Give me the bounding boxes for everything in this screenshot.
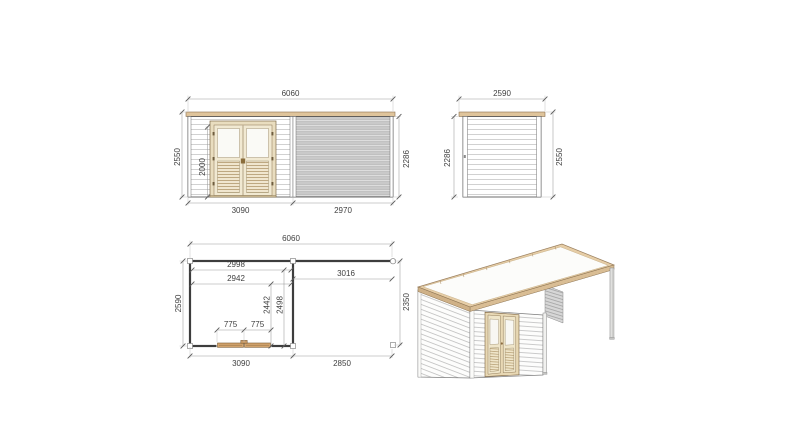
dim-front-wall-height: 2286 <box>394 114 411 199</box>
door-hinge <box>213 157 215 160</box>
dim-text: 6060 <box>282 234 300 243</box>
technical-drawing-sheet: { "sheet": { "background": "#ffffff", "d… <box>0 0 794 446</box>
post-plan <box>291 259 296 264</box>
post-plan <box>291 344 296 349</box>
dim-text: 3016 <box>337 269 355 278</box>
divider-board <box>290 117 293 198</box>
wall-fitting <box>464 155 466 158</box>
dim-front-total-width: 6060 <box>186 89 396 111</box>
dim-side-total-width: 2590 <box>457 89 548 111</box>
double-door-3d <box>485 312 519 376</box>
front-elevation-view: 6060 2550 2000 2286 3090 2970 <box>170 85 420 223</box>
dim-plan-canopy-inner-width: 3016 <box>291 269 395 281</box>
dim-plan-bottom: 3090 2850 <box>188 347 395 368</box>
slat-trim-right <box>390 117 393 198</box>
door-hinge <box>271 132 273 135</box>
door-glass-right <box>247 129 269 158</box>
door-hinge <box>213 182 215 185</box>
dim-text: 2550 <box>173 148 182 166</box>
dim-text: 2442 <box>263 296 272 314</box>
dim-plan-total-depth: 2590 <box>174 259 188 349</box>
perspective-3d-view <box>408 226 638 396</box>
post-foot <box>610 337 615 339</box>
dim-text: 775 <box>224 320 238 329</box>
floor-plan-svg: 6060 2998 2942 3016 2590 2442 2498 2350 <box>170 226 420 373</box>
door-hinge <box>271 182 273 185</box>
dim-text: 2550 <box>555 148 564 166</box>
side-wall-siding <box>463 117 541 198</box>
roof-trim <box>459 112 545 117</box>
flat-roof-3d <box>418 244 614 312</box>
dim-text: 775 <box>251 320 265 329</box>
dim-plan-total-width: 6060 <box>188 234 395 259</box>
perspective-3d-svg <box>408 226 638 396</box>
door-threshold <box>210 196 276 198</box>
corner-trim-3d <box>418 290 421 377</box>
dim-front-total-height: 2550 <box>173 110 187 200</box>
dim-text: 2850 <box>333 359 351 368</box>
double-door <box>210 121 276 197</box>
dim-text: 2000 <box>198 158 207 176</box>
canopy-slat-wall <box>293 117 393 198</box>
door-louver-3d <box>505 348 514 371</box>
door-handle-3d <box>501 342 503 344</box>
floor-plan-view: 6060 2998 2942 3016 2590 2442 2498 2350 <box>170 226 420 373</box>
corner-board-left <box>188 117 191 198</box>
dim-text: 2590 <box>493 89 511 98</box>
dim-text: 3090 <box>232 206 250 215</box>
door-louver-right <box>247 161 269 193</box>
dim-text: 6060 <box>282 89 300 98</box>
door-louver-3d <box>490 348 499 372</box>
canopy-post-near <box>543 313 547 374</box>
door-glass-left <box>218 129 240 158</box>
dim-front-bottom: 3090 2970 <box>186 198 396 215</box>
dim-text: 2970 <box>334 206 352 215</box>
slat-trim-left <box>293 117 296 198</box>
roof-trim <box>186 112 395 117</box>
front-elevation-svg: 6060 2550 2000 2286 3090 2970 <box>170 85 420 223</box>
corner-post-right <box>537 117 542 198</box>
door-glass-3d <box>505 320 514 346</box>
dim-side-total-height: 2550 <box>542 110 564 200</box>
side-elevation-view: 2590 2286 2550 <box>430 85 580 223</box>
post-plan <box>188 259 193 264</box>
dim-side-wall-height: 2286 <box>443 114 458 199</box>
dim-text: 2498 <box>276 296 285 314</box>
side-elevation-svg: 2590 2286 2550 <box>430 85 580 223</box>
door-louver-left <box>218 161 240 193</box>
dim-text: 2942 <box>227 274 245 283</box>
door-hinge <box>271 157 273 160</box>
corner-trim-3d <box>470 310 474 378</box>
dim-text: 2286 <box>402 150 411 168</box>
canopy-post-far <box>610 268 615 339</box>
dim-text: 2286 <box>443 149 452 167</box>
door-glass-3d <box>490 319 499 345</box>
door-hinge <box>213 132 215 135</box>
dim-text: 3090 <box>232 359 250 368</box>
door-handle <box>241 159 245 164</box>
dim-text: 2590 <box>174 294 183 312</box>
canopy-slat-screen-3d <box>545 285 563 323</box>
dim-text: 2998 <box>227 260 245 269</box>
post-foot <box>543 372 547 374</box>
